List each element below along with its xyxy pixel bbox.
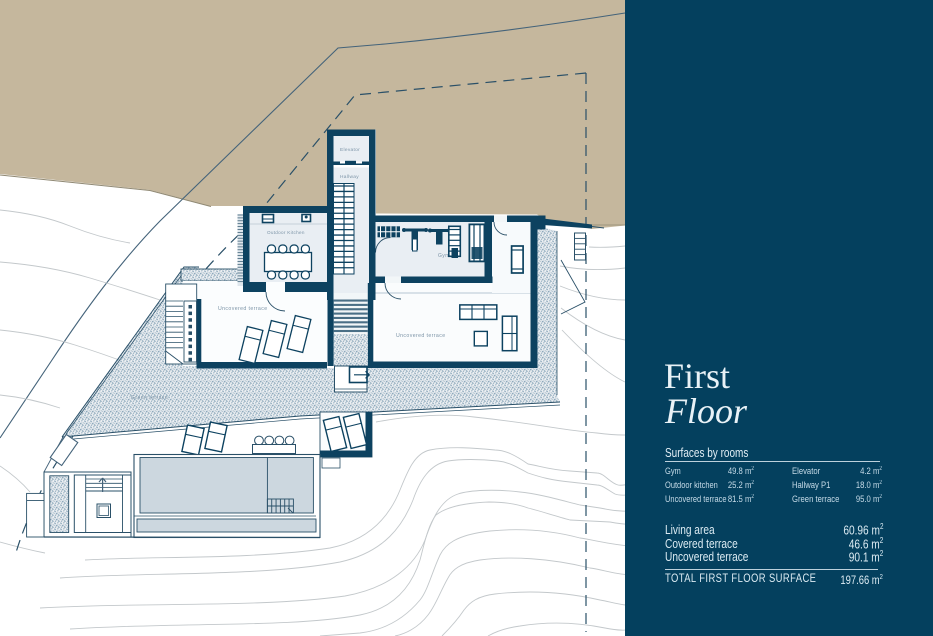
svg-text:Uncovered terrace: Uncovered terrace (218, 306, 267, 312)
svg-text:Hallway: Hallway (340, 174, 359, 180)
svg-text:Green terrace: Green terrace (131, 395, 168, 401)
svg-text:Uncovered terrace: Uncovered terrace (396, 333, 445, 339)
svg-text:Outdoor Kitchen: Outdoor Kitchen (267, 230, 305, 235)
svg-text:Elevator: Elevator (340, 147, 360, 153)
